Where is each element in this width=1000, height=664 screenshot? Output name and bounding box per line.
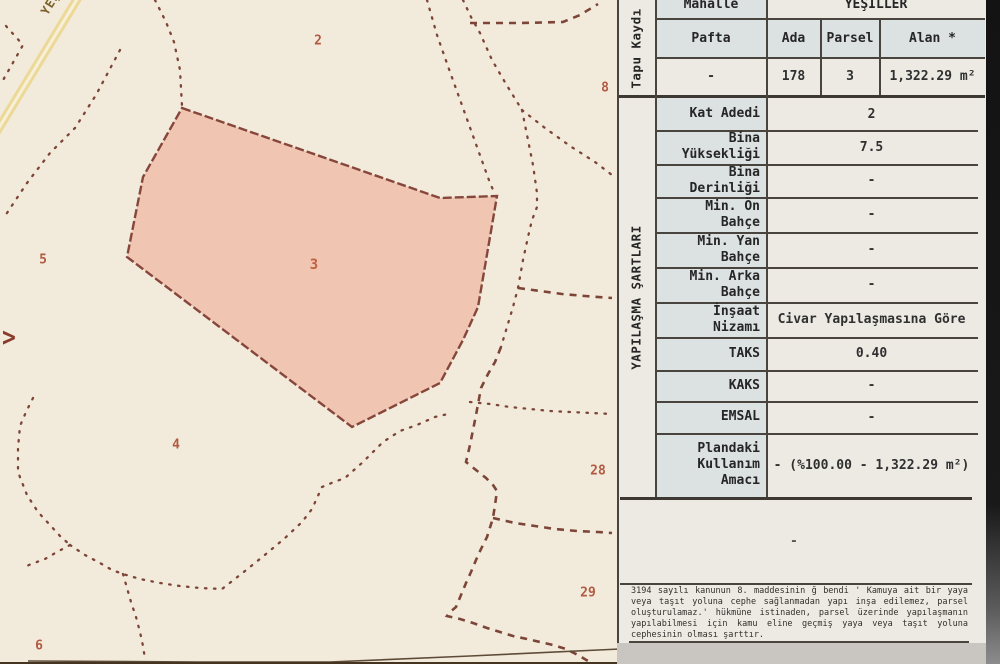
row-label-bina-derinligi: Bina Derinliği xyxy=(656,164,768,197)
row-label-plandaki-kullanim: Plandaki Kullanım Amacı xyxy=(656,433,768,497)
yapilasma-sartlari-section-label: YAPILAŞMA ŞARTLARI xyxy=(629,225,644,369)
yapilasma-sartlari-section: YAPILAŞMA ŞARTLARI xyxy=(617,98,655,497)
note-top-line xyxy=(620,583,972,585)
zoning-table-panel: Tapu Kaydı YAPILAŞMA ŞARTLARI Mahalle YE… xyxy=(617,0,986,664)
cadastral-map xyxy=(0,0,620,664)
zoning-document-photo: YEŞ > 2 8 5 3 4 28 29 6 xyxy=(0,0,1000,664)
row-label-min-arka-bahce: Min. Arka Bahçe xyxy=(656,267,768,302)
value-min-on-bahce: - xyxy=(768,197,975,232)
parcel-label-8: 8 xyxy=(601,81,609,96)
parcel-label-28: 28 xyxy=(590,464,606,479)
empty-row-dash: - xyxy=(790,534,798,549)
col-header-ada: Ada xyxy=(767,19,820,57)
tapu-kaydi-section-label: Tapu Kaydı xyxy=(629,8,644,88)
col-header-alan: Alan * xyxy=(880,19,985,57)
row-label-min-on-bahce: Min. Ön Bahçe xyxy=(656,197,768,232)
mahalle-value-cell: YEŞİLLER xyxy=(767,0,985,18)
legal-note-text: 3194 sayılı kanunun 8. maddesinin ğ bend… xyxy=(631,586,968,641)
parcel-label-3: 3 xyxy=(310,257,318,273)
row-label-kaks: KAKS xyxy=(656,370,768,401)
row-label-kat-adedi: Kat Adedi xyxy=(656,98,768,130)
parcel-label-29: 29 xyxy=(580,586,596,601)
mahalle-header-cell: Mahalle xyxy=(656,0,766,18)
value-emsal: - xyxy=(768,401,975,433)
value-min-arka-bahce: - xyxy=(768,267,975,302)
tapu-kaydi-section: Tapu Kaydı xyxy=(617,0,655,96)
col-header-parsel: Parsel xyxy=(821,19,879,57)
parsel-value: 3 xyxy=(821,58,879,95)
value-kaks: - xyxy=(768,370,975,401)
row-label-taks: TAKS xyxy=(656,337,768,370)
photo-bottom-shadow xyxy=(617,643,986,664)
photo-edge-strip xyxy=(986,0,1000,664)
direction-arrow-icon: > xyxy=(2,323,16,353)
row-label-emsal: EMSAL xyxy=(656,401,768,433)
alan-value: 1,322.29 m² xyxy=(880,58,985,95)
value-plandaki-kullanim: - (%100.00 - 1,322.29 m²) xyxy=(768,433,975,497)
value-bina-yuksekligi: 7.5 xyxy=(768,130,975,164)
row-label-min-yan-bahce: Min. Yan Bahçe xyxy=(656,232,768,267)
parcel-label-4: 4 xyxy=(172,438,180,453)
parcel-label-6: 6 xyxy=(35,639,43,654)
value-insaat-nizami: Civar Yapılaşmasına Göre xyxy=(768,302,975,337)
row-label-insaat-nizami: İnşaat Nizamı xyxy=(656,302,768,337)
row-label-bina-yuksekligi: Bina Yüksekliği xyxy=(656,130,768,164)
value-min-yan-bahce: - xyxy=(768,232,975,267)
col-header-pafta: Pafta xyxy=(656,19,766,57)
parcel-label-2: 2 xyxy=(314,34,322,49)
ada-value: 178 xyxy=(767,58,820,95)
value-kat-adedi: 2 xyxy=(768,98,975,130)
value-bina-derinligi: - xyxy=(768,164,975,197)
table-bottom-line xyxy=(620,497,972,500)
parcel-label-5: 5 xyxy=(39,253,47,268)
value-taks: 0.40 xyxy=(768,337,975,370)
pafta-value: - xyxy=(656,58,766,95)
